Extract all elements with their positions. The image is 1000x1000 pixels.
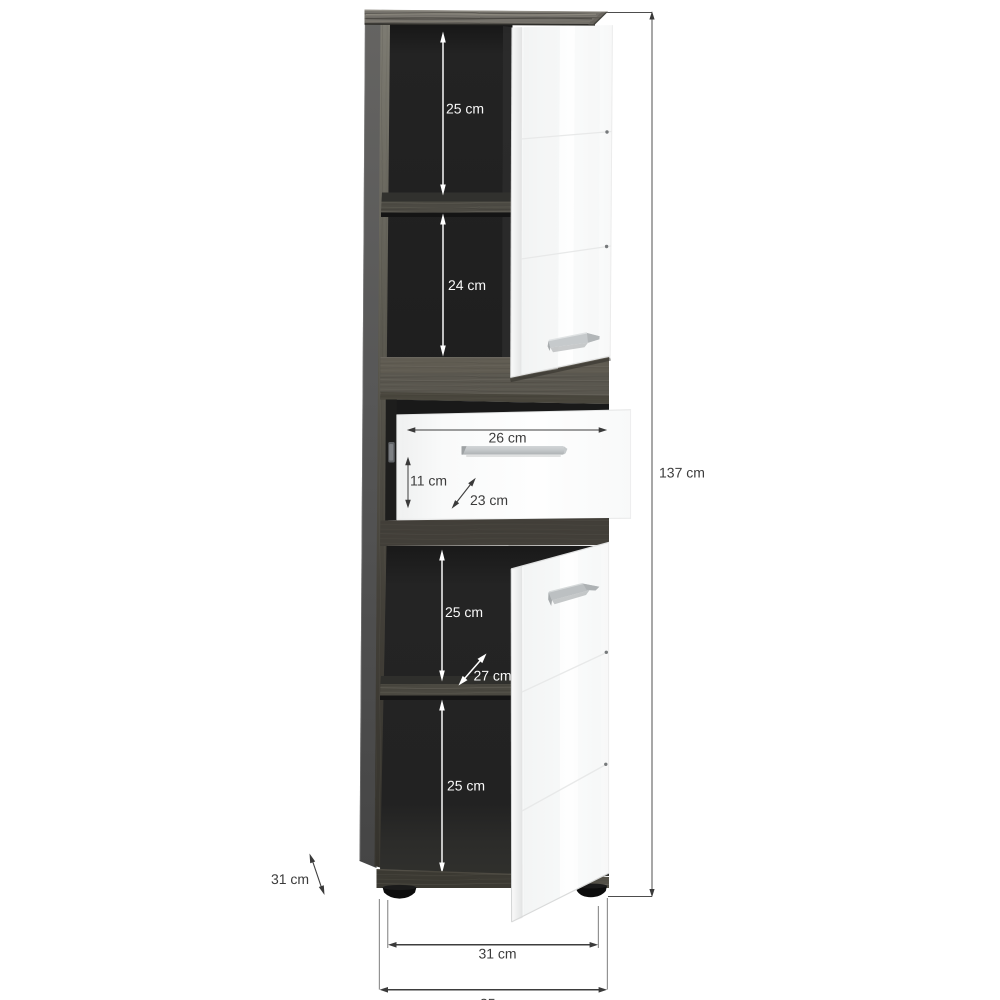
svg-text:23 cm: 23 cm — [470, 492, 508, 508]
svg-text:25 cm: 25 cm — [445, 604, 483, 620]
svg-text:31 cm: 31 cm — [478, 945, 516, 961]
svg-text:11 cm: 11 cm — [410, 472, 447, 488]
svg-text:27 cm: 27 cm — [473, 667, 511, 683]
svg-text:35 cm: 35 cm — [480, 995, 518, 1000]
svg-text:26 cm: 26 cm — [488, 429, 526, 445]
svg-text:137 cm: 137 cm — [659, 465, 705, 481]
svg-text:25 cm: 25 cm — [447, 777, 485, 793]
svg-text:31 cm: 31 cm — [271, 871, 309, 887]
svg-text:24 cm: 24 cm — [448, 277, 486, 293]
svg-text:25 cm: 25 cm — [446, 100, 484, 116]
